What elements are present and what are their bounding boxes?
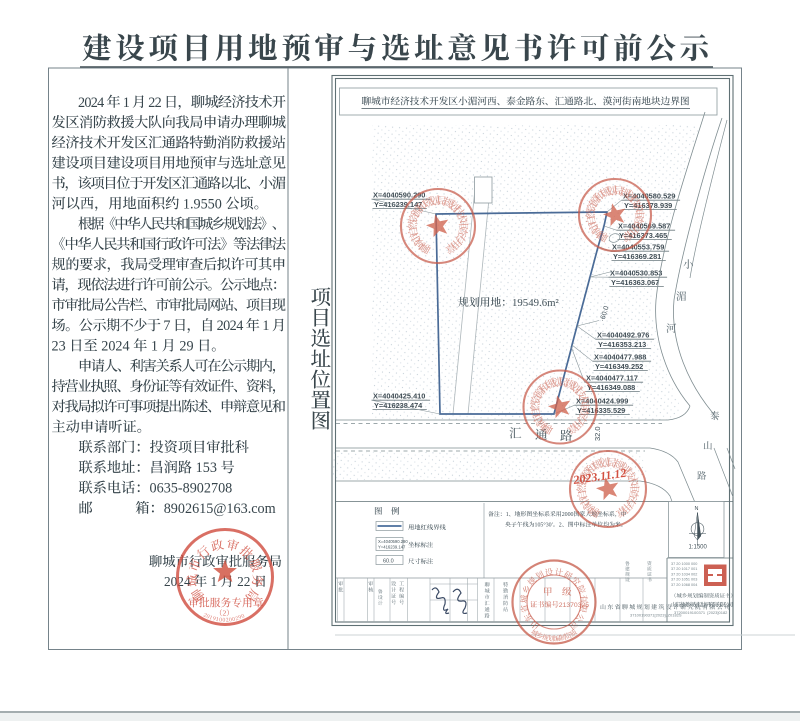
svg-text:X=4040569.587: X=4040569.587 xyxy=(618,221,670,230)
svg-text:2024: 2024 xyxy=(78,95,106,111)
svg-text:153: 153 xyxy=(192,460,220,476)
svg-text:N: N xyxy=(695,506,699,512)
svg-text:m²: m² xyxy=(547,297,559,309)
svg-text:37 20 1051 003: 37 20 1051 003 xyxy=(671,578,697,582)
svg-text:23: 23 xyxy=(52,338,70,354)
svg-text:X=4040492.976: X=4040492.976 xyxy=(597,330,649,339)
svg-text:37200019100371 [2023]0182: 37200019100371 [2023]0182 xyxy=(674,610,728,615)
svg-text:8902615@163.com: 8902615@163.com xyxy=(164,501,276,517)
svg-text:1: 1 xyxy=(506,512,509,518)
svg-text:60.0: 60.0 xyxy=(383,559,394,565)
svg-text:22: 22 xyxy=(145,95,163,111)
svg-text:Y=416239.147: Y=416239.147 xyxy=(378,545,406,550)
svg-text:1:1500: 1:1500 xyxy=(689,545,708,551)
svg-text:37 20 1034 002: 37 20 1034 002 xyxy=(671,572,697,576)
svg-text:Y=416349.088: Y=416349.088 xyxy=(587,383,635,392)
svg-text:Y=416369.281: Y=416369.281 xyxy=(613,252,661,261)
svg-text:X=4040425.410: X=4040425.410 xyxy=(373,391,425,400)
svg-text:Y=416353.213: Y=416353.213 xyxy=(598,340,646,349)
svg-text:X=4040530.853: X=4040530.853 xyxy=(610,268,662,277)
svg-text:Y=416363.067: Y=416363.067 xyxy=(611,278,659,287)
svg-text:1: 1 xyxy=(120,95,132,111)
svg-text:22: 22 xyxy=(234,574,254,589)
svg-text:2000: 2000 xyxy=(562,512,574,518)
svg-text:37 20 1000 000: 37 20 1000 000 xyxy=(671,562,697,566)
svg-text:1.9550: 1.9550 xyxy=(179,196,225,212)
svg-text:X=4040477.117: X=4040477.117 xyxy=(586,373,638,382)
svg-text:29: 29 xyxy=(176,338,197,354)
svg-text:105°30′: 105°30′ xyxy=(535,522,553,529)
svg-text:2024: 2024 xyxy=(98,338,133,354)
svg-text:2: 2 xyxy=(559,523,562,529)
svg-text:Y=416349.252: Y=416349.252 xyxy=(595,362,643,371)
svg-text:X=4040477.988: X=4040477.988 xyxy=(594,352,646,361)
svg-text:37100190371[2023]JZ0182S: 37100190371[2023]JZ0182S xyxy=(630,613,682,618)
svg-text:X=4040590.290: X=4040590.290 xyxy=(378,539,408,544)
svg-text:2: 2 xyxy=(223,609,227,618)
svg-text:7: 7 xyxy=(160,318,172,334)
svg-text:1: 1 xyxy=(147,338,161,354)
svg-text:19549.6: 19549.6 xyxy=(512,297,548,309)
svg-text:0635-8902708: 0635-8902708 xyxy=(150,481,233,497)
svg-text:32.0: 32.0 xyxy=(593,426,602,441)
svg-text:37 20 1068 004: 37 20 1068 004 xyxy=(671,583,697,587)
svg-text:2024: 2024 xyxy=(214,318,246,334)
svg-text:21370325: 21370325 xyxy=(559,602,589,609)
svg-text:37 20 1017 001: 37 20 1017 001 xyxy=(671,567,697,571)
svg-text:1: 1 xyxy=(259,318,271,334)
